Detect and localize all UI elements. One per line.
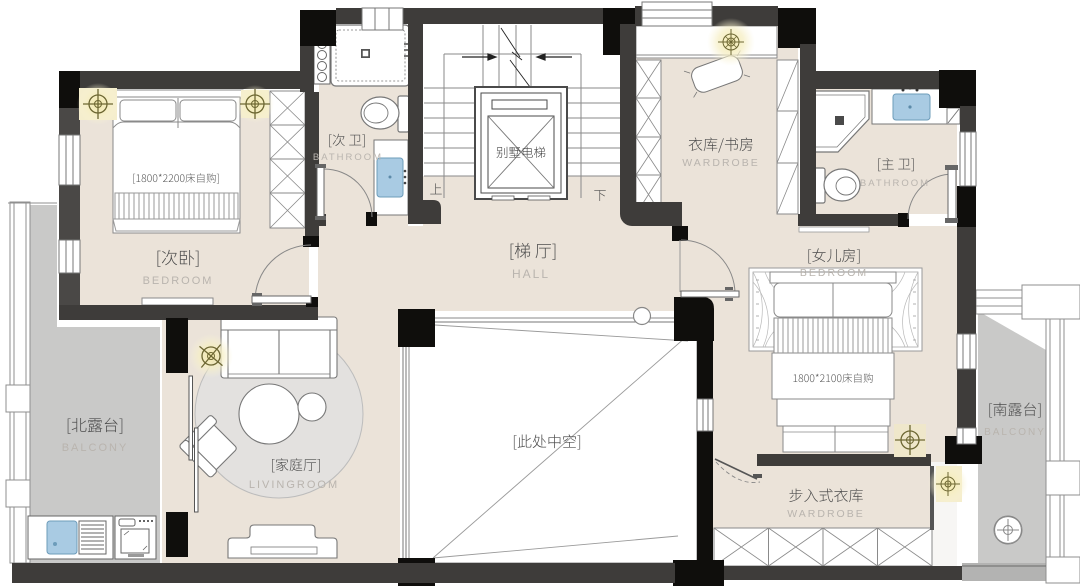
svg-text:BALCONY: BALCONY bbox=[62, 442, 129, 454]
svg-text:BEDROOM: BEDROOM bbox=[800, 267, 868, 279]
svg-text:HALL: HALL bbox=[512, 267, 550, 281]
svg-text:BALCONY: BALCONY bbox=[984, 427, 1046, 438]
svg-text:BEDROOM: BEDROOM bbox=[143, 275, 214, 287]
svg-text:WARDROBE: WARDROBE bbox=[682, 157, 759, 169]
svg-text:BATHROOM: BATHROOM bbox=[313, 152, 383, 163]
svg-text:WARDROBE: WARDROBE bbox=[787, 508, 864, 520]
svg-text:BATHROOM: BATHROOM bbox=[860, 178, 930, 189]
svg-text:LIVINGROOM: LIVINGROOM bbox=[249, 479, 339, 491]
